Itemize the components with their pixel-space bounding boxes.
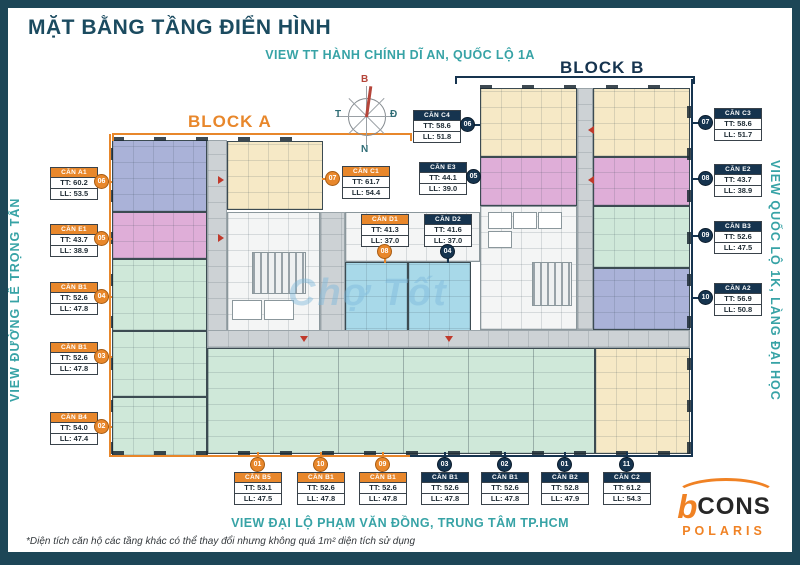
unit-label-b2: CĂN B2 TT: 52.8 LL: 47.9 [541, 472, 589, 505]
leader-line [692, 235, 699, 237]
unit-area-tt: TT: 58.6 [715, 118, 761, 129]
unit-label-e3: CĂN E3 TT: 44.1 LL: 39.0 [419, 162, 467, 195]
unit-badge: 04 [441, 245, 454, 258]
unit-area-ll: LL: 50.8 [715, 304, 761, 315]
unit-area-ll: LL: 51.8 [414, 131, 460, 142]
unit-shape-b1-04 [112, 259, 207, 331]
entrance-arrow-icon [445, 336, 453, 346]
unit-name: CĂN D1 [362, 215, 408, 224]
unit-name: CĂN E3 [420, 163, 466, 172]
elevator-icon [513, 212, 537, 229]
unit-badge: 06 [461, 118, 474, 131]
entrance-arrow-icon [218, 234, 228, 242]
unit-area-tt: TT: 58.6 [414, 120, 460, 131]
compass-icon: B Đ T N [334, 78, 398, 162]
unit-area-ll: LL: 47.5 [235, 493, 281, 504]
unit-label-b1-b02: CĂN B1 TT: 52.6 LL: 47.8 [481, 472, 529, 505]
stairs-icon [532, 262, 572, 306]
unit-area-tt: TT: 52.6 [360, 482, 406, 493]
unit-label-b1-10: CĂN B1 TT: 52.6 LL: 47.8 [297, 472, 345, 505]
unit-badge: 11 [620, 458, 633, 471]
unit-label-d1: CĂN D1 TT: 41.3 LL: 37.0 [361, 214, 409, 247]
unit-name: CĂN D2 [425, 215, 471, 224]
unit-area-tt: TT: 52.6 [482, 482, 528, 493]
corridor-b [577, 88, 593, 330]
unit-name: CĂN B1 [482, 473, 528, 482]
unit-name: CĂN E1 [51, 225, 97, 234]
unit-area-tt: TT: 44.1 [420, 172, 466, 183]
elevator-icon [538, 212, 562, 229]
elevator-icon [488, 212, 512, 229]
view-label-top: VIEW TT HÀNH CHÍNH DĨ AN, QUỐC LỘ 1A [180, 48, 620, 62]
unit-name: CĂN B1 [422, 473, 468, 482]
unit-label-d2: CĂN D2 TT: 41.6 LL: 37.0 [424, 214, 472, 247]
unit-badge: 03 [438, 458, 451, 471]
unit-area-tt: TT: 52.6 [51, 292, 97, 303]
unit-name: CĂN B1 [51, 283, 97, 292]
unit-name: CĂN B3 [715, 222, 761, 231]
unit-area-tt: TT: 52.8 [542, 482, 588, 493]
unit-badge: 02 [95, 420, 108, 433]
unit-area-ll: LL: 47.8 [482, 493, 528, 504]
unit-label-e2: CĂN E2 TT: 43.7 LL: 38.9 [714, 164, 762, 197]
unit-name: CĂN B5 [235, 473, 281, 482]
logo-b-glyph: b [677, 488, 697, 525]
entrance-arrow-icon [584, 176, 594, 184]
unit-label-c4: CĂN C4 TT: 58.6 LL: 51.8 [413, 110, 461, 143]
unit-area-ll: LL: 38.9 [715, 185, 761, 196]
leader-line [692, 178, 699, 180]
entrance-arrow-icon [300, 336, 308, 346]
unit-label-b4: CĂN B4 TT: 54.0 LL: 47.4 [50, 412, 98, 445]
unit-label-b1-09: CĂN B1 TT: 52.6 LL: 47.8 [359, 472, 407, 505]
unit-area-tt: TT: 52.6 [715, 231, 761, 242]
unit-area-tt: TT: 61.7 [343, 176, 389, 187]
unit-label-b1-b03: CĂN B1 TT: 52.6 LL: 47.8 [421, 472, 469, 505]
unit-area-ll: LL: 47.9 [542, 493, 588, 504]
unit-area-ll: LL: 47.8 [51, 363, 97, 374]
unit-name: CĂN A2 [715, 284, 761, 293]
unit-row-b-bottom [207, 348, 595, 454]
page-title: MẶT BẰNG TẦNG ĐIỂN HÌNH [28, 16, 331, 40]
unit-area-ll: LL: 47.8 [422, 493, 468, 504]
leader-line [474, 124, 480, 126]
unit-badge: 10 [699, 291, 712, 304]
bcons-polaris-logo: bCONS POLARIS [664, 482, 784, 548]
unit-shape-a2 [593, 268, 690, 330]
unit-label-b5: CĂN B5 TT: 53.1 LL: 47.5 [234, 472, 282, 505]
block-a-label: BLOCK A [188, 112, 272, 132]
unit-area-ll: LL: 38.9 [51, 245, 97, 256]
unit-name: CĂN C4 [414, 111, 460, 120]
unit-name: CĂN C1 [343, 167, 389, 176]
unit-badge: 05 [95, 232, 108, 245]
photo-watermark: Chợ Tốt [288, 272, 448, 315]
unit-area-ll: LL: 47.5 [715, 242, 761, 253]
unit-badge: 07 [326, 172, 339, 185]
unit-shape-a1 [112, 140, 207, 212]
unit-shape-b1-03 [112, 331, 207, 397]
unit-shape-b4 [112, 397, 207, 456]
unit-area-tt: TT: 43.7 [51, 234, 97, 245]
elevator-icon [232, 300, 262, 320]
compass-east-label: Đ [390, 109, 397, 120]
unit-area-ll: LL: 54.4 [343, 187, 389, 198]
view-label-right: VIEW QUỐC LỘ 1K, LÀNG ĐẠI HỌC [758, 110, 782, 450]
compass-south-label: N [361, 144, 368, 155]
unit-shape-e2 [593, 157, 690, 206]
logo-project-name: POLARIS [664, 524, 784, 538]
leader-line [692, 297, 699, 299]
logo-wordmark: bCONS [664, 488, 784, 526]
unit-shape-c2 [595, 348, 690, 454]
unit-badge: 08 [378, 245, 391, 258]
unit-area-tt: TT: 61.2 [604, 482, 650, 493]
unit-badge: 08 [699, 172, 712, 185]
logo-brand-text: CONS [697, 493, 770, 520]
unit-name: CĂN B1 [360, 473, 406, 482]
unit-name: CĂN E2 [715, 165, 761, 174]
unit-area-tt: TT: 54.0 [51, 422, 97, 433]
unit-area-tt: TT: 43.7 [715, 174, 761, 185]
block-a-outline-bottom [109, 455, 410, 457]
compass-west-label: T [335, 109, 341, 120]
unit-shape-c1 [227, 141, 323, 210]
unit-area-ll: LL: 39.0 [420, 183, 466, 194]
leader-line [692, 122, 699, 124]
unit-area-ll: LL: 47.8 [51, 303, 97, 314]
unit-area-ll: LL: 47.8 [360, 493, 406, 504]
unit-shape-e1 [112, 212, 207, 259]
corridor-a [207, 140, 227, 348]
unit-badge: 04 [95, 290, 108, 303]
unit-area-tt: TT: 53.1 [235, 482, 281, 493]
block-b-label: BLOCK B [560, 58, 644, 78]
unit-name: CĂN B4 [51, 413, 97, 422]
unit-shape-c3 [593, 88, 690, 157]
unit-badge: 07 [699, 116, 712, 129]
unit-area-tt: TT: 41.6 [425, 224, 471, 235]
unit-area-ll: LL: 47.8 [298, 493, 344, 504]
compass-north-label: B [361, 74, 368, 85]
unit-label-a1: CĂN A1 TT: 60.2 LL: 53.5 [50, 167, 98, 200]
unit-area-ll: LL: 53.5 [51, 188, 97, 199]
unit-shape-c4 [480, 88, 577, 157]
block-b-outline-bottom [410, 455, 692, 457]
block-b-outline-right [691, 79, 693, 457]
unit-area-tt: TT: 41.3 [362, 224, 408, 235]
unit-area-ll: LL: 54.3 [604, 493, 650, 504]
entrance-arrow-icon [218, 176, 228, 184]
unit-name: CĂN B1 [298, 473, 344, 482]
unit-name: CĂN B2 [542, 473, 588, 482]
unit-shape-e3 [480, 157, 577, 206]
unit-badge: 10 [314, 458, 327, 471]
unit-badge: 03 [95, 350, 108, 363]
unit-area-tt: TT: 60.2 [51, 177, 97, 188]
entrance-arrow-icon [584, 126, 594, 134]
leader-line [447, 258, 449, 263]
area-disclaimer-note: *Diện tích căn hộ các tầng khác có thể t… [26, 536, 415, 547]
floor-plan-poster: MẶT BẰNG TẦNG ĐIỂN HÌNH VIEW TT HÀNH CHÍ… [0, 0, 800, 565]
unit-label-b3: CĂN B3 TT: 52.6 LL: 47.5 [714, 221, 762, 254]
view-label-bottom: VIEW ĐẠI LỘ PHẠM VĂN ĐỒNG, TRUNG TÂM TP.… [160, 516, 640, 530]
unit-badge: 09 [699, 229, 712, 242]
unit-area-tt: TT: 52.6 [422, 482, 468, 493]
unit-name: CĂN C3 [715, 109, 761, 118]
unit-label-c2: CĂN C2 TT: 61.2 LL: 54.3 [603, 472, 651, 505]
unit-badge: 02 [498, 458, 511, 471]
unit-label-e1: CĂN E1 TT: 43.7 LL: 38.9 [50, 224, 98, 257]
unit-badge: 05 [467, 170, 480, 183]
view-label-left: VIEW ĐƯỜNG LÊ TRỌNG TẤN [8, 150, 32, 450]
elevator-icon [488, 231, 512, 248]
balcony-wall-ticks [480, 85, 690, 89]
leader-line [384, 258, 386, 263]
unit-area-tt: TT: 52.6 [298, 482, 344, 493]
unit-badge: 01 [251, 458, 264, 471]
unit-name: CĂN A1 [51, 168, 97, 177]
unit-badge: 06 [95, 175, 108, 188]
unit-area-tt: TT: 52.6 [51, 352, 97, 363]
unit-label-a2: CĂN A2 TT: 56.9 LL: 50.8 [714, 283, 762, 316]
unit-badge: 09 [376, 458, 389, 471]
unit-badge: 01 [558, 458, 571, 471]
unit-label-c3: CĂN C3 TT: 58.6 LL: 51.7 [714, 108, 762, 141]
unit-name: CĂN B1 [51, 343, 97, 352]
unit-shape-b3 [593, 206, 690, 268]
unit-area-tt: TT: 56.9 [715, 293, 761, 304]
unit-label-c1: CĂN C1 TT: 61.7 LL: 54.4 [342, 166, 390, 199]
unit-name: CĂN C2 [604, 473, 650, 482]
unit-area-ll: LL: 47.4 [51, 433, 97, 444]
unit-area-ll: LL: 51.7 [715, 129, 761, 140]
unit-label-b1-04: CĂN B1 TT: 52.6 LL: 47.8 [50, 282, 98, 315]
unit-label-b1-03: CĂN B1 TT: 52.6 LL: 47.8 [50, 342, 98, 375]
